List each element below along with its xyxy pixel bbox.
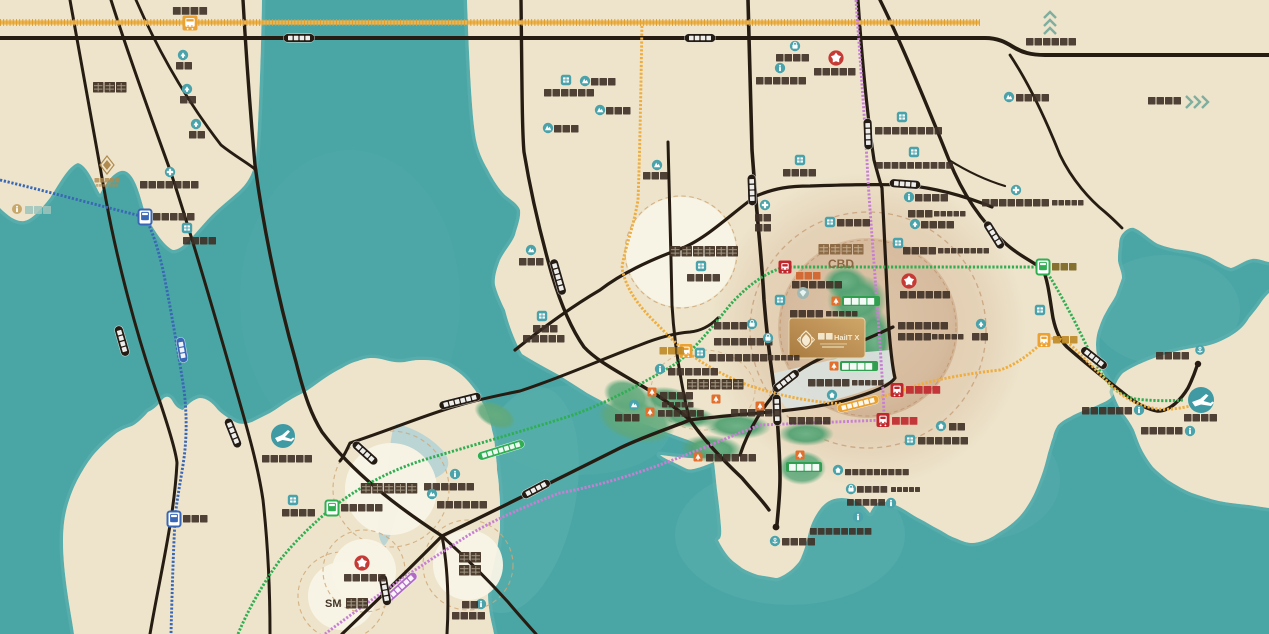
svg-text:HaiIT X: HaiIT X (834, 333, 859, 342)
svg-text:CBD: CBD (828, 257, 854, 271)
svg-text:SM: SM (325, 598, 342, 610)
